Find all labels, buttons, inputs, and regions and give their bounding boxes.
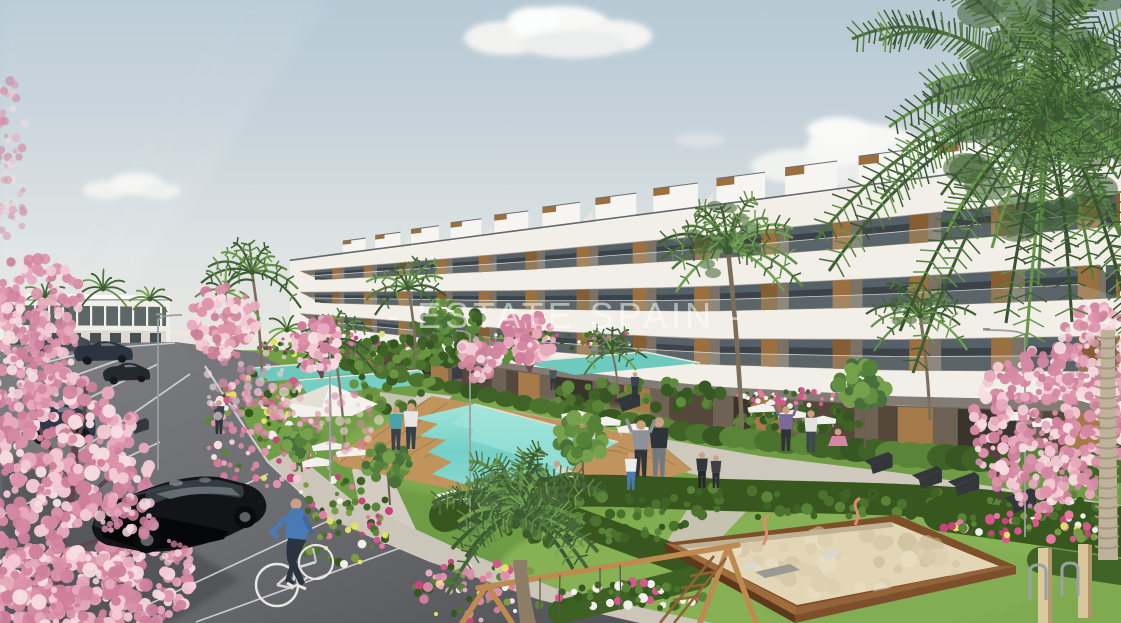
svg-text:- ESTATE SPAIN -: - ESTATE SPAIN - [387,295,745,336]
